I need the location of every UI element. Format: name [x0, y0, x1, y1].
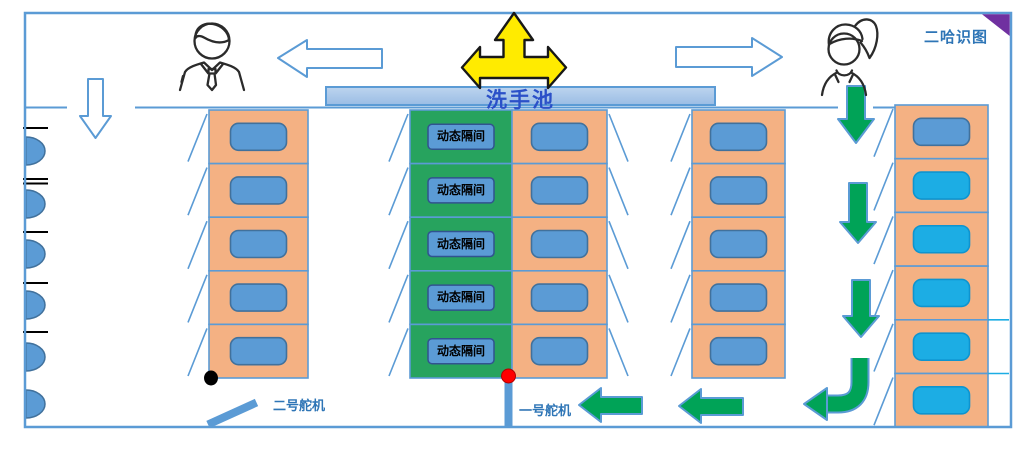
servo2-lever-line [208, 403, 257, 425]
urinal [26, 137, 45, 165]
stall-door-plate [231, 231, 287, 258]
stall-door-plate [711, 123, 767, 150]
flow-arrow-curve-outline [827, 358, 860, 404]
urinal [26, 343, 45, 371]
dynamic-stall-cell [410, 271, 512, 325]
stall-door-line [609, 114, 628, 162]
flow-arrow-down-1 [838, 86, 874, 143]
three-way-arrow-icon [462, 13, 566, 88]
stall-door-plate [532, 177, 588, 204]
center-stall-column [512, 110, 628, 378]
stall-door-line [874, 163, 893, 211]
stalls-layer [23, 105, 988, 427]
stall-door-line [188, 221, 207, 269]
stall-door-line [609, 221, 628, 269]
servo1-pivot-dot [502, 369, 516, 383]
woman-ponytail [855, 19, 877, 58]
stall-door-line [609, 275, 628, 323]
urinal [26, 190, 45, 218]
servo2-label: 二号舵机 [273, 395, 325, 414]
urinal [26, 390, 45, 418]
flow-arrow-down-2 [840, 183, 876, 243]
man-icon [180, 24, 244, 91]
room-wall-outline [25, 13, 1011, 427]
stall-door-plate [532, 338, 588, 365]
man-tie [208, 69, 217, 90]
woman-headband [830, 39, 863, 44]
stall-cell [209, 324, 308, 378]
stall-door-line [874, 324, 893, 372]
stall-door-line [389, 114, 408, 162]
stall-door-plate [532, 284, 588, 311]
stall-cell [692, 324, 785, 378]
dynamic-stall-button-label: 动态隔间 [428, 232, 494, 257]
stall-cell [895, 212, 988, 266]
dynamic-stall-button-label: 动态隔间 [428, 285, 494, 310]
woman-icon [822, 19, 877, 95]
stall-door-plate [914, 387, 970, 414]
woman-shoulders [822, 73, 866, 96]
corner-fold-triangle [982, 14, 1010, 36]
stall-cell [209, 271, 308, 325]
dynamic-stall-button-label: 动态隔间 [428, 124, 494, 149]
stall-door-plate [231, 338, 287, 365]
dynamic-stall-button-label: 动态隔间 [428, 178, 494, 203]
entry-arrow-left-icon [278, 40, 382, 77]
stall-door-line [389, 221, 408, 269]
man-hair [195, 24, 229, 43]
stall-door-line [671, 114, 690, 162]
stall-door-line [188, 114, 207, 162]
woman-hair [829, 24, 863, 45]
man-head [195, 24, 230, 59]
stall-door-line [188, 275, 207, 323]
stall-cell [209, 110, 308, 164]
dynamic-stall-button [428, 124, 494, 149]
stall-door-plate [914, 333, 970, 360]
urinal [26, 291, 45, 319]
stall-door-plate [711, 231, 767, 258]
stall-cell [895, 374, 988, 428]
entry-arrow-down-icon [80, 79, 111, 138]
stall-door-plate [231, 177, 287, 204]
dynamic-stall-button [428, 285, 494, 310]
stall-door-plate [231, 123, 287, 150]
stall-cell [895, 266, 988, 320]
stall-door-plate [532, 123, 588, 150]
servo2-pivot-dot [204, 371, 218, 386]
dynamic-stall-button [428, 232, 494, 257]
stall-cell [512, 217, 607, 271]
dynamic-stall-button [428, 339, 494, 364]
dynamic-stall-button-label: 动态隔间 [428, 339, 494, 364]
stall-cell [512, 271, 607, 325]
stall-door-line [188, 328, 207, 376]
stall-cell [895, 320, 988, 374]
stall-door-line [389, 168, 408, 216]
stall-cell [895, 105, 988, 159]
dynamic-stall-cell [410, 217, 512, 271]
stall-cell [512, 324, 607, 378]
stall-door-plate [914, 279, 970, 306]
flow-arrow-curve [827, 358, 860, 404]
flow-arrow-down-3 [843, 280, 879, 337]
stall-door-line [671, 168, 690, 216]
stall-door-line [874, 109, 893, 157]
stall-cell [209, 164, 308, 218]
labels-layer: 洗手池 二哈识图 一号舵机 二号舵机 动态隔间动态隔间动态隔间动态隔间动态隔间 [0, 0, 1024, 450]
sink-counter [325, 86, 716, 106]
stall-cell [895, 159, 988, 213]
dynamic-stall-column [389, 110, 512, 378]
stall-door-line [671, 328, 690, 376]
stall-cell [692, 110, 785, 164]
stall-door-line [874, 216, 893, 264]
urinal-row [23, 128, 48, 418]
dynamic-stall-cell [410, 110, 512, 164]
stall-cell [512, 164, 607, 218]
dynamic-stall-button [428, 178, 494, 203]
left-stall-column [188, 110, 308, 378]
stall-door-line [389, 275, 408, 323]
stall-door-plate [231, 284, 287, 311]
stall-door-line [671, 275, 690, 323]
stall-door-plate [914, 172, 970, 199]
man-lapels [182, 64, 224, 82]
restroom-layout-diagram: 洗手池 二哈识图 一号舵机 二号舵机 动态隔间动态隔间动态隔间动态隔间动态隔间 [0, 0, 1024, 450]
entry-arrow-right-icon [676, 38, 782, 76]
woman-vest [835, 71, 853, 83]
woman-head [829, 34, 860, 65]
stall-cell [209, 217, 308, 271]
stall-cell [692, 271, 785, 325]
man-suit [180, 63, 244, 91]
stall-door-plate [914, 118, 970, 145]
stall-door-line [188, 168, 207, 216]
stall-door-plate [711, 338, 767, 365]
flow-arrow-curve-head [804, 388, 827, 420]
wall-stall-column [874, 105, 988, 427]
stall-door-line [609, 328, 628, 376]
stall-door-line [874, 378, 893, 426]
stall-cell [692, 164, 785, 218]
stall-door-line [609, 168, 628, 216]
stall-door-plate [532, 231, 588, 258]
stall-door-line [671, 221, 690, 269]
stall-cell [512, 110, 607, 164]
flow-arrow-left-1 [679, 389, 743, 423]
servo1-label: 一号舵机 [519, 400, 571, 419]
stall-door-plate [711, 284, 767, 311]
flow-arrow-left-2 [579, 388, 642, 422]
stall-door-plate [914, 226, 970, 253]
stall-door-plate [711, 177, 767, 204]
stall-cell [692, 217, 785, 271]
urinal [26, 240, 45, 268]
stall-door-line [874, 270, 893, 318]
dynamic-stall-cell [410, 164, 512, 218]
huskylens-corner-label: 二哈识图 [888, 26, 988, 47]
stall-door-line [389, 328, 408, 376]
dynamic-stall-cell [410, 324, 512, 378]
right-stall-column [671, 110, 785, 378]
